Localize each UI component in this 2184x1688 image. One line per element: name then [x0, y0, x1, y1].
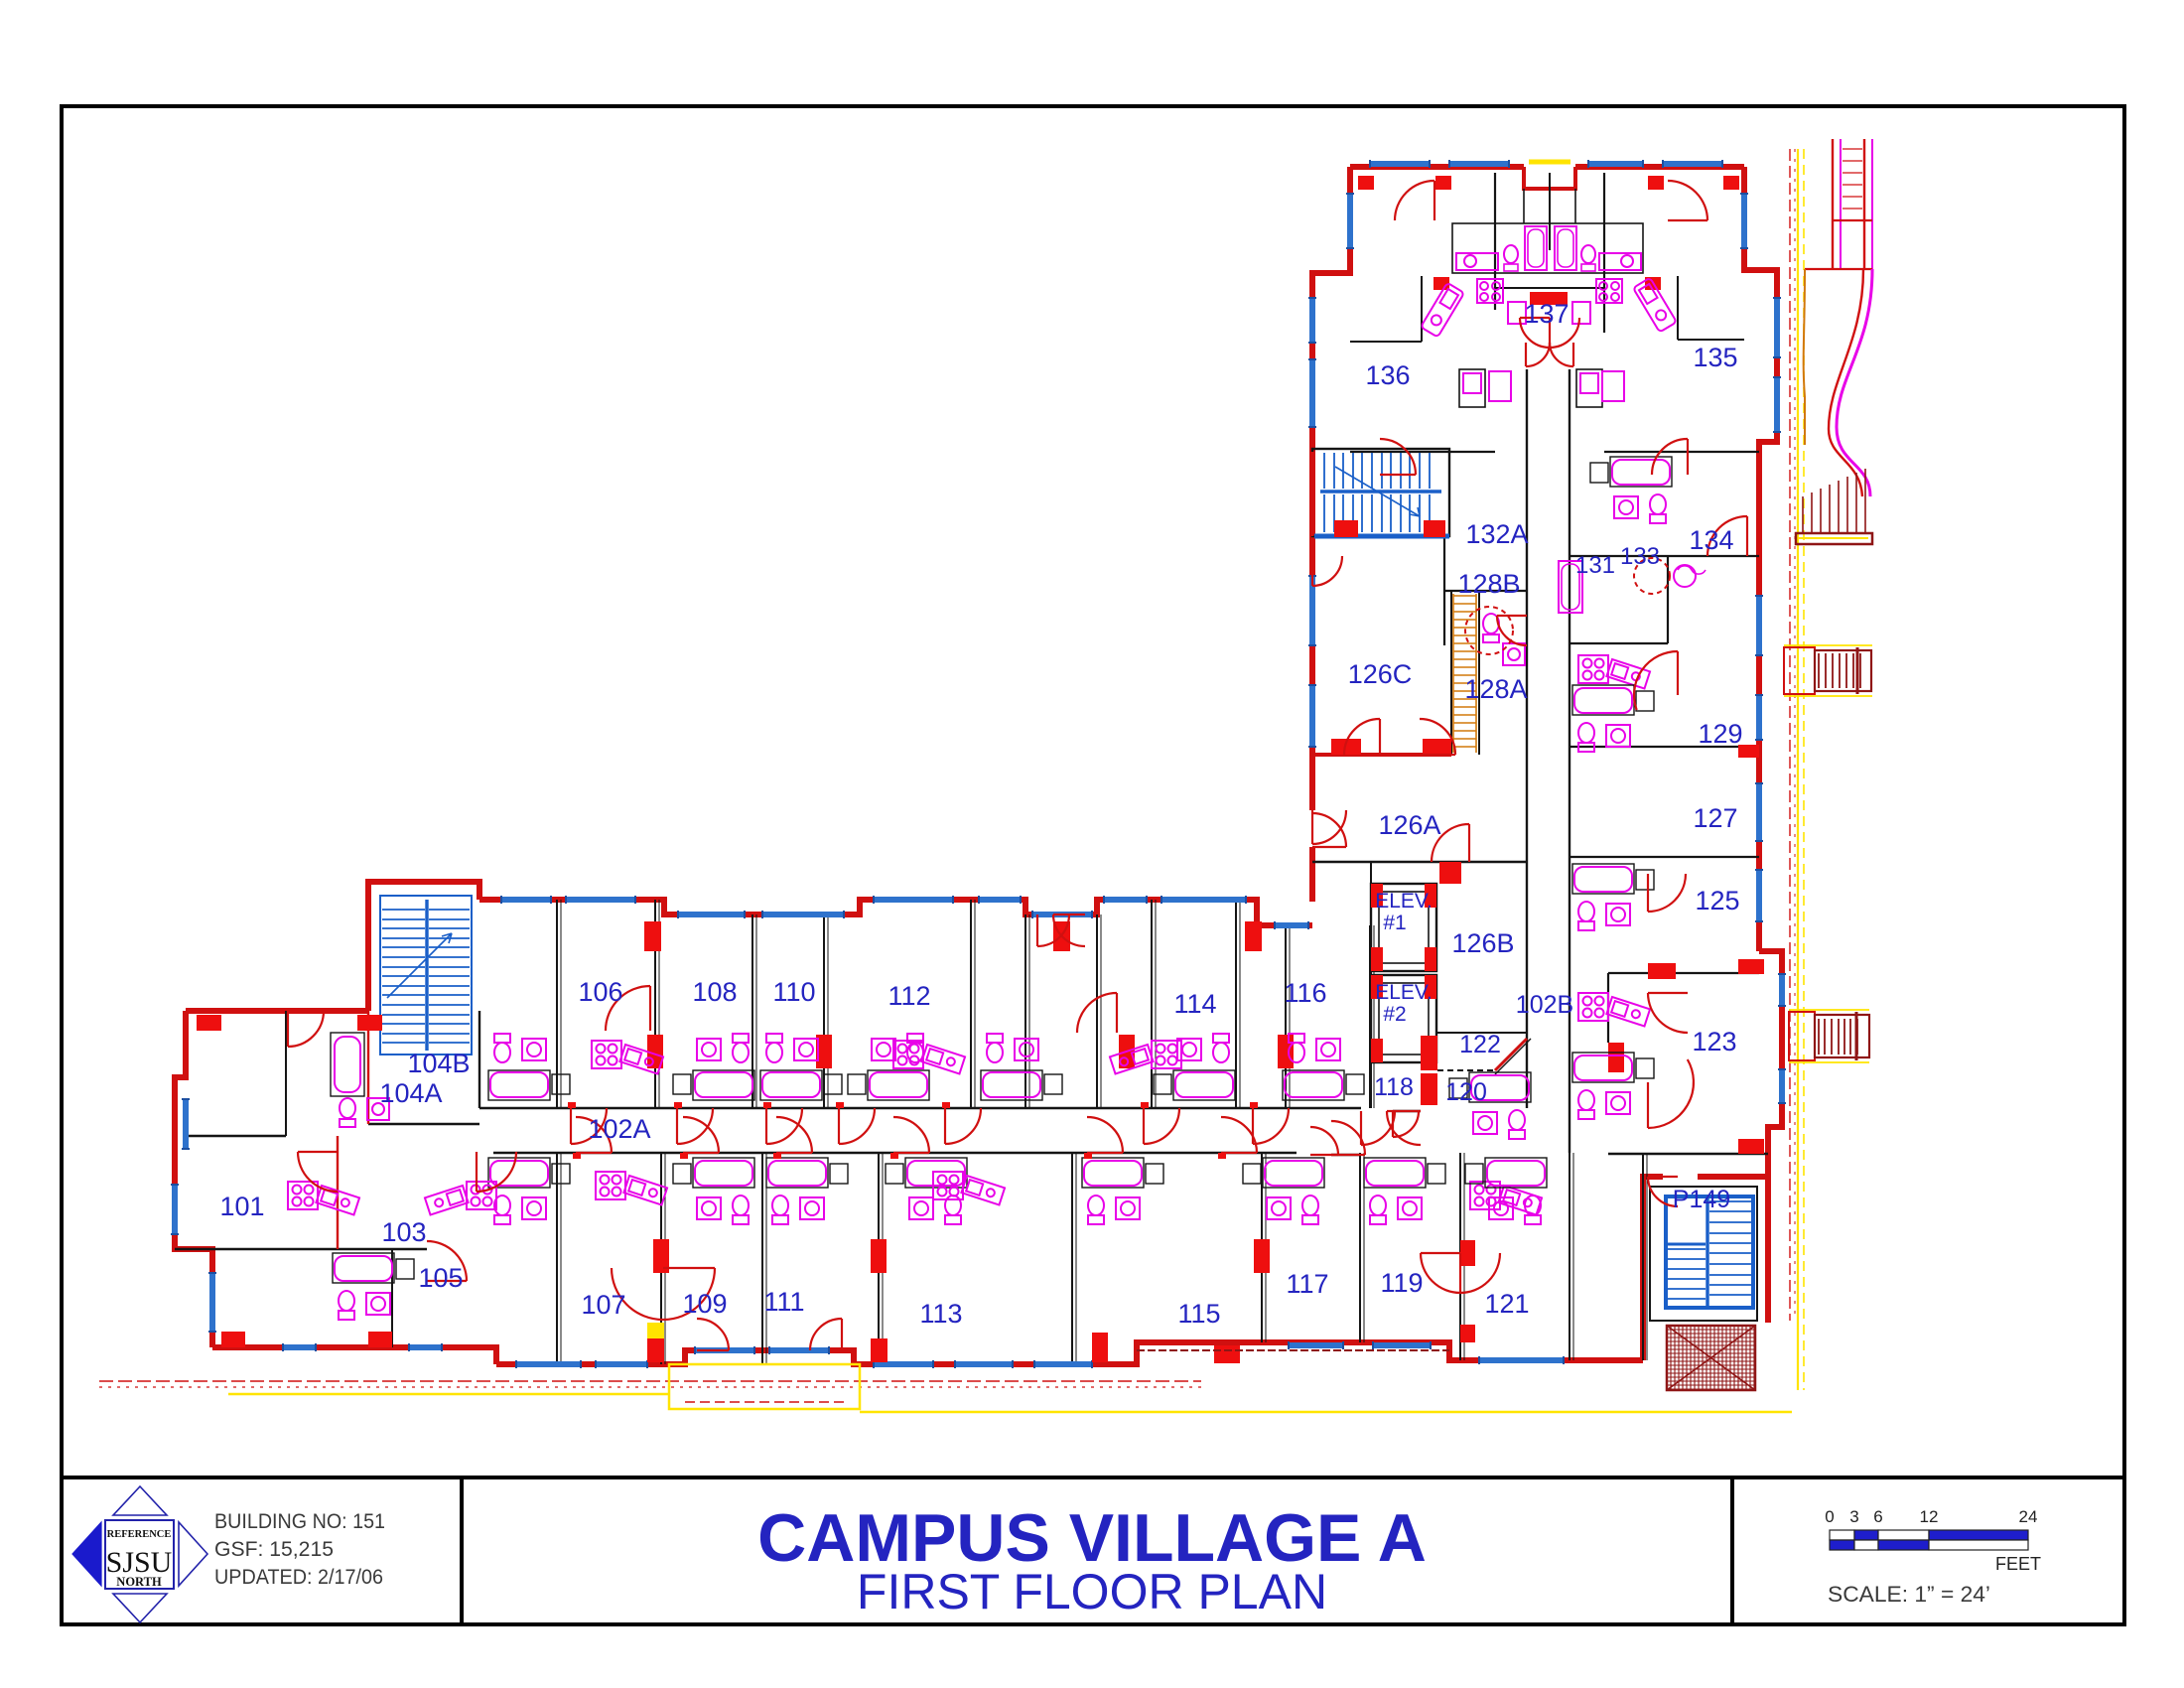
svg-text:24: 24: [2019, 1507, 2038, 1526]
svg-text:126C: 126C: [1348, 659, 1413, 689]
svg-text:UPDATED: 2/17/06: UPDATED: 2/17/06: [214, 1566, 383, 1589]
svg-text:#1: #1: [1383, 912, 1406, 934]
svg-text:101: 101: [219, 1192, 264, 1221]
svg-text:104B: 104B: [407, 1049, 470, 1078]
svg-text:GSF: 15,215: GSF: 15,215: [214, 1538, 334, 1561]
svg-text:ELEV.: ELEV.: [1375, 890, 1433, 913]
svg-text:102B: 102B: [1516, 991, 1573, 1019]
svg-text:128B: 128B: [1457, 569, 1520, 599]
svg-text:105: 105: [418, 1263, 463, 1293]
svg-text:FIRST FLOOR PLAN: FIRST FLOOR PLAN: [857, 1564, 1327, 1619]
svg-text:FEET: FEET: [1995, 1554, 2041, 1574]
svg-text:125: 125: [1695, 886, 1739, 915]
svg-text:0: 0: [1825, 1507, 1834, 1526]
svg-text:134: 134: [1689, 525, 1733, 555]
svg-text:126B: 126B: [1451, 928, 1514, 958]
svg-text:123: 123: [1692, 1027, 1736, 1056]
svg-text:6: 6: [1873, 1507, 1882, 1526]
svg-text:12: 12: [1920, 1507, 1939, 1526]
svg-text:119: 119: [1380, 1268, 1423, 1298]
svg-text:136: 136: [1365, 360, 1410, 390]
svg-text:131: 131: [1575, 552, 1615, 579]
svg-text:122: 122: [1459, 1031, 1501, 1058]
svg-text:135: 135: [1693, 343, 1737, 372]
svg-text:127: 127: [1693, 803, 1737, 833]
svg-text:3: 3: [1849, 1507, 1858, 1526]
svg-text:P149: P149: [1673, 1186, 1730, 1213]
svg-text:132A: 132A: [1465, 519, 1528, 549]
svg-text:109: 109: [682, 1289, 727, 1319]
svg-text:117: 117: [1286, 1269, 1328, 1299]
svg-text:104A: 104A: [379, 1078, 442, 1108]
svg-text:NORTH: NORTH: [116, 1575, 162, 1589]
svg-text:118: 118: [1374, 1073, 1414, 1101]
svg-text:112: 112: [887, 981, 930, 1011]
svg-text:114: 114: [1173, 989, 1216, 1019]
svg-text:133: 133: [1620, 543, 1660, 570]
svg-text:107: 107: [581, 1290, 625, 1320]
svg-text:102A: 102A: [588, 1114, 650, 1144]
svg-text:108: 108: [692, 977, 737, 1007]
svg-text:126A: 126A: [1378, 810, 1440, 840]
svg-text:REFERENCE: REFERENCE: [107, 1529, 172, 1540]
svg-text:ELEV.: ELEV.: [1375, 981, 1433, 1004]
svg-text:116: 116: [1284, 978, 1326, 1008]
svg-text:110: 110: [772, 977, 815, 1007]
svg-text:115: 115: [1177, 1299, 1220, 1329]
svg-text:128A: 128A: [1464, 674, 1527, 704]
svg-text:111: 111: [763, 1287, 804, 1317]
svg-text:SCALE: 1” = 24’: SCALE: 1” = 24’: [1828, 1582, 1990, 1607]
svg-text:BUILDING NO: 151: BUILDING NO: 151: [214, 1510, 385, 1533]
svg-text:129: 129: [1698, 719, 1742, 749]
svg-text:121: 121: [1484, 1289, 1529, 1319]
svg-text:120: 120: [1445, 1078, 1487, 1106]
svg-text:103: 103: [381, 1217, 426, 1247]
svg-text:137: 137: [1524, 299, 1569, 329]
svg-text:113: 113: [919, 1299, 962, 1329]
svg-text:106: 106: [578, 977, 622, 1007]
svg-text:#2: #2: [1383, 1003, 1406, 1026]
